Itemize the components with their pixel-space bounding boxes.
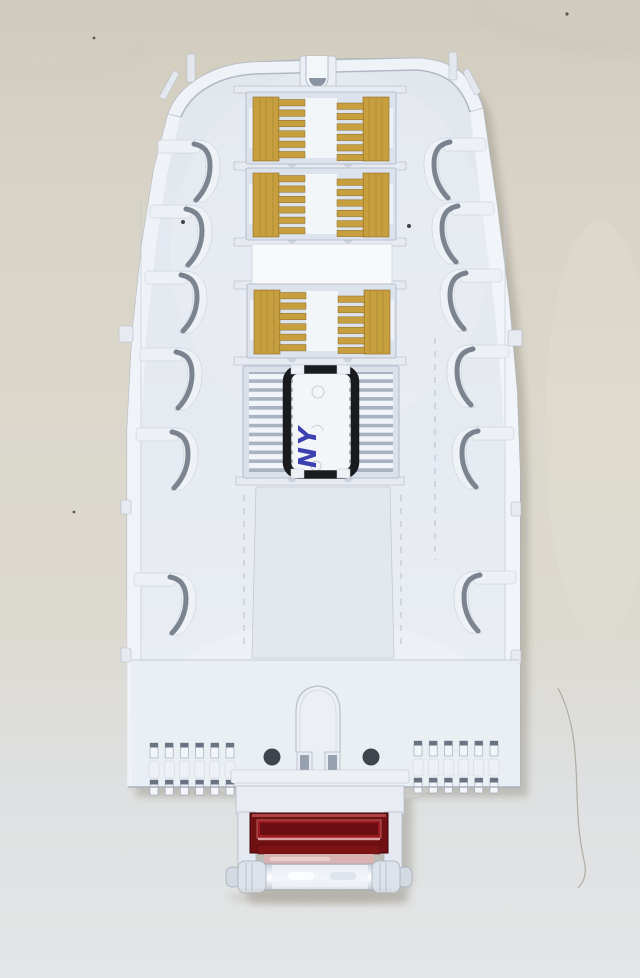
center-panel — [252, 487, 394, 658]
screw-hole-left — [264, 749, 281, 766]
photo-canvas: NY — [0, 0, 640, 978]
handwritten-label: NY — [293, 424, 322, 468]
module-center — [305, 174, 337, 234]
latch-highlight — [258, 838, 380, 840]
bottom-rail — [231, 770, 409, 783]
latch-assembly — [226, 786, 412, 904]
screw-hole-right — [363, 749, 380, 766]
molded-dot — [181, 220, 185, 224]
hinge-bracket-plate — [236, 786, 404, 814]
latch-red-plate — [250, 813, 388, 854]
hinge-pin-bar — [226, 861, 412, 893]
splice-holder-module-1 — [246, 92, 396, 164]
splice-tray: NY — [119, 52, 522, 810]
corner-post-right — [449, 52, 457, 80]
blank-label-area — [252, 244, 392, 284]
splice-holder-module-3 — [247, 284, 396, 358]
splice-holder-module-2 — [246, 168, 396, 240]
splice-tray-photo: NY — [0, 0, 640, 978]
molded-dot — [407, 224, 411, 228]
splice-block: NY — [243, 365, 399, 478]
module-center — [305, 98, 337, 158]
module-center — [306, 291, 338, 351]
latch-shadow — [229, 890, 409, 904]
window-streak — [270, 857, 330, 861]
corner-post-left — [187, 54, 195, 82]
